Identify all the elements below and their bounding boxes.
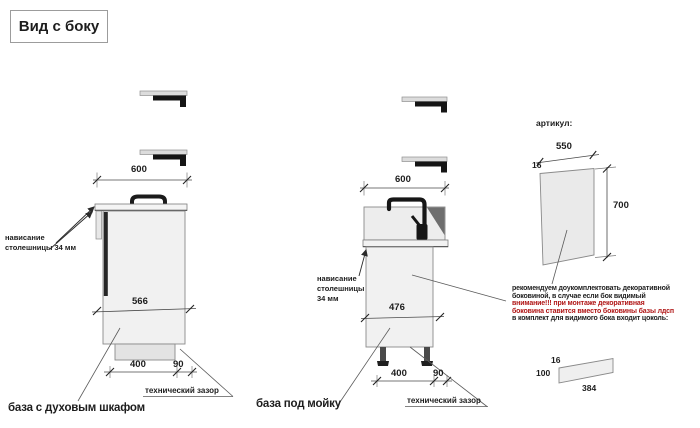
note-line: в комплект для видимого бока входит цоко… xyxy=(512,315,674,323)
wall-bracket-icon xyxy=(140,91,187,107)
note-line: боковиной, в случае если бок видимый xyxy=(512,293,674,301)
oven-handle xyxy=(132,197,165,205)
left-overhang-label-line1: нависание xyxy=(5,234,45,242)
left-unit-caption: база с духовым шкафом xyxy=(8,402,145,414)
sink-base-drawing xyxy=(363,200,448,367)
dim-plinth-height: 100 xyxy=(536,369,550,378)
dim-sink-inner-width: 476 xyxy=(389,303,405,313)
wall-bracket-icon xyxy=(140,150,187,166)
note-warning-line: внимание!!! при монтаже декоративная xyxy=(512,300,674,308)
view-title-box: Вид с боку xyxy=(10,10,108,43)
dim-plinth-thickness: 16 xyxy=(551,356,560,365)
dim-panel-height: 700 xyxy=(613,201,629,211)
sink-unit-caption: база под мойку xyxy=(256,398,341,410)
sink-gap-label: технический зазор xyxy=(407,397,481,405)
note-line: рекомендуем доукомплектовать декоративно… xyxy=(512,285,674,293)
panel-note: рекомендуем доукомплектовать декоративно… xyxy=(512,285,674,323)
dim-left-bottom-depth: 400 xyxy=(130,360,146,370)
plinth-piece-drawing xyxy=(559,359,613,384)
oven-door-edge xyxy=(104,212,108,296)
technical-drawing xyxy=(0,0,700,428)
dim-sink-top-width: 600 xyxy=(395,175,411,185)
dim-plinth-length: 384 xyxy=(582,384,596,393)
wall-bracket-icon xyxy=(402,97,447,113)
dim-panel-thickness: 16 xyxy=(532,161,541,170)
left-overhang-label-line2: столешницы 34 мм xyxy=(5,244,76,252)
dim-sink-bottom-gap: 90 xyxy=(433,369,444,379)
wall-bracket-icon xyxy=(402,157,447,173)
decor-side-panel-drawing xyxy=(540,169,594,266)
dim-left-inner-width: 566 xyxy=(132,297,148,307)
dim-left-top-width: 600 xyxy=(131,165,147,175)
drawing-canvas: Вид с боку 600 566 400 90 нависание стол… xyxy=(0,0,700,428)
article-header: артикул: xyxy=(536,119,572,128)
cabinet-leg xyxy=(377,347,389,366)
sink-overhang-label-line1: нависание xyxy=(317,275,357,283)
dim-sink-bottom-depth: 400 xyxy=(391,369,407,379)
oven-base-drawing xyxy=(95,197,187,361)
sink-overhang-label-line2: столешницы xyxy=(317,285,364,293)
sink-overhang-label-line3: 34 мм xyxy=(317,295,339,303)
oven-plinth xyxy=(115,344,175,360)
left-gap-label: технический зазор xyxy=(145,387,219,395)
dim-panel-width: 550 xyxy=(556,142,572,152)
dim-left-bottom-gap: 90 xyxy=(173,360,184,370)
page-title: Вид с боку xyxy=(19,18,100,35)
